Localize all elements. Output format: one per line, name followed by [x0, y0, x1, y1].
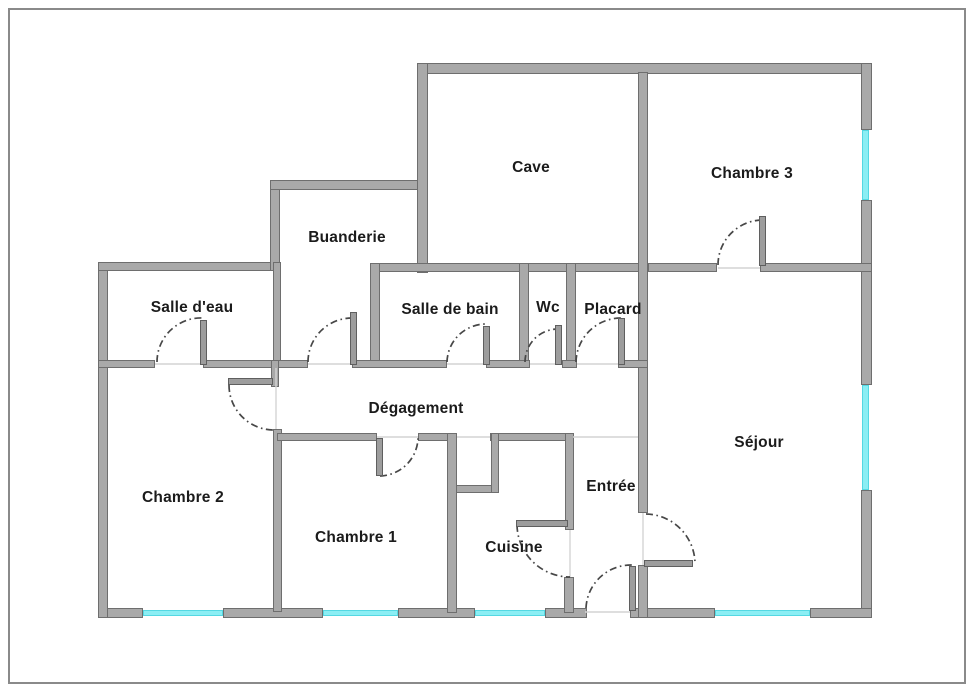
wall-segment [352, 360, 447, 368]
room-label-chambre-2: Chambre 2 [142, 489, 224, 507]
door-swing-arc [308, 318, 352, 362]
door-leaf [555, 325, 562, 365]
room-label-cuisine: Cuisine [485, 539, 542, 557]
wall-segment [270, 180, 428, 190]
wall-segment [638, 72, 648, 513]
wall-segment [810, 608, 872, 618]
wall-segment [638, 565, 648, 618]
wall-segment [203, 360, 308, 368]
wall-segment [486, 360, 530, 368]
wall-segment [98, 262, 280, 271]
wall-segment [273, 262, 281, 368]
wall-segment [490, 433, 573, 441]
room-label-salle-d-eau: Salle d'eau [151, 299, 234, 317]
door-leaf [759, 216, 766, 266]
window-marker [862, 130, 869, 200]
room-label-salle-de-bain: Salle de bain [401, 301, 498, 319]
wall-segment [519, 263, 529, 368]
door-leaf [516, 520, 568, 527]
room-label-placard: Placard [584, 301, 641, 319]
door-swing-arc [447, 324, 486, 362]
wall-segment [760, 263, 872, 272]
wall-segment [370, 263, 648, 272]
door-swing-arc [157, 318, 203, 362]
window-marker [475, 610, 545, 616]
floorplan-page: CaveChambre 3BuanderieSalle d'eauSalle d… [0, 0, 980, 695]
door-swing-arc [229, 385, 273, 430]
door-leaf [629, 566, 636, 611]
wall-segment [861, 200, 872, 385]
wall-segment [648, 263, 717, 272]
door-swing-arc [586, 565, 632, 608]
wall-segment [566, 263, 576, 368]
room-label-wc: Wc [536, 299, 560, 317]
door-leaf [200, 320, 207, 365]
wall-segment [562, 360, 577, 368]
room-label-cave: Cave [512, 159, 550, 177]
wall-segment [98, 262, 108, 618]
door-leaf [350, 312, 357, 365]
wall-segment [565, 433, 574, 530]
door-swing-arc [718, 220, 762, 265]
door-swing-arc [576, 318, 621, 362]
floorplan-drawing: CaveChambre 3BuanderieSalle d'eauSalle d… [0, 0, 980, 695]
door-swing-layer [0, 0, 980, 695]
wall-segment [398, 608, 475, 618]
window-marker [323, 610, 398, 616]
wall-segment [564, 577, 574, 613]
wall-segment [270, 180, 280, 271]
door-leaf [228, 378, 273, 385]
wall-segment [273, 429, 282, 612]
door-leaf [644, 560, 693, 567]
room-label-buanderie: Buanderie [308, 229, 386, 247]
door-swing-arc [380, 438, 418, 476]
room-label-entree: Entrée [586, 478, 635, 496]
wall-segment [417, 63, 428, 273]
door-swing-arc [525, 329, 558, 362]
wall-segment [861, 63, 872, 130]
wall-segment [277, 433, 377, 441]
door-leaf [618, 318, 625, 365]
room-label-chambre-1: Chambre 1 [315, 529, 397, 547]
door-leaf [483, 326, 490, 365]
window-marker [715, 610, 810, 616]
wall-segment [491, 433, 499, 493]
room-label-sejour: Séjour [734, 434, 783, 452]
wall-segment [861, 490, 872, 618]
window-marker [862, 385, 869, 490]
wall-segment [370, 263, 380, 368]
wall-segment [98, 360, 155, 368]
door-leaf [376, 438, 383, 476]
door-swing-arc [646, 514, 695, 563]
room-label-degagement: Dégagement [368, 400, 463, 418]
window-marker [143, 610, 223, 616]
room-label-chambre-3: Chambre 3 [711, 165, 793, 183]
wall-segment [447, 433, 457, 613]
